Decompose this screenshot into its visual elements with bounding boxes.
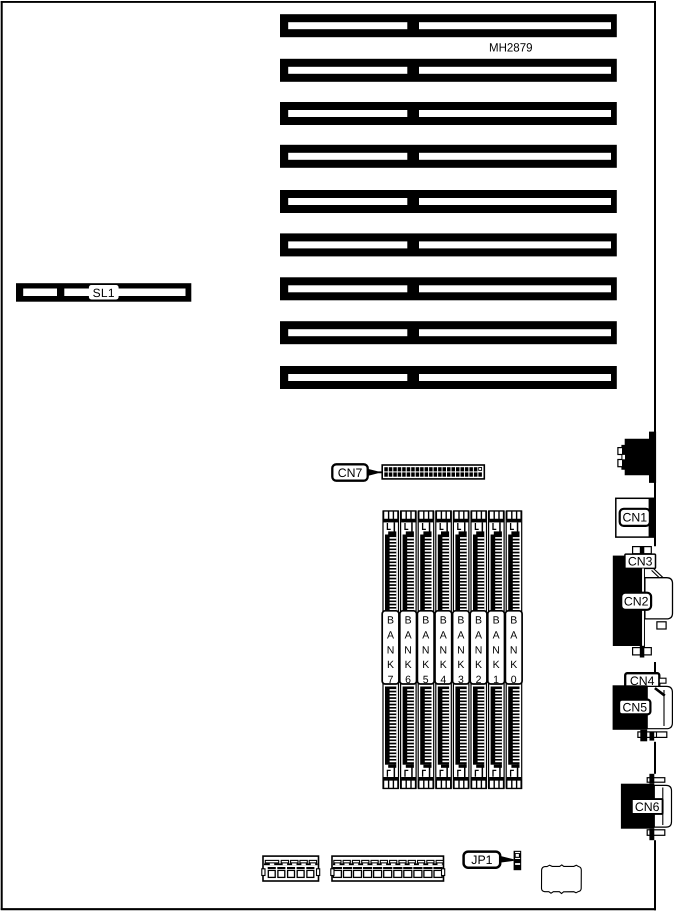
svg-text:N: N — [510, 644, 518, 656]
svg-text:K: K — [387, 659, 394, 671]
svg-text:CN5: CN5 — [622, 700, 647, 714]
svg-text:CN1: CN1 — [622, 511, 647, 525]
svg-text:N: N — [457, 644, 465, 656]
svg-text:K: K — [493, 659, 500, 671]
svg-text:A: A — [457, 630, 464, 642]
svg-text:N: N — [492, 644, 500, 656]
svg-text:6: 6 — [405, 674, 411, 686]
svg-text:4: 4 — [440, 674, 446, 686]
svg-text:1: 1 — [493, 674, 499, 686]
svg-text:K: K — [510, 659, 517, 671]
svg-text:B: B — [405, 615, 412, 627]
svg-text:0: 0 — [511, 674, 517, 686]
svg-text:B: B — [493, 615, 500, 627]
svg-text:B: B — [475, 615, 482, 627]
svg-text:CN2: CN2 — [624, 595, 649, 609]
svg-text:K: K — [475, 659, 482, 671]
svg-text:3: 3 — [458, 674, 464, 686]
svg-text:2: 2 — [476, 674, 482, 686]
svg-text:A: A — [387, 630, 394, 642]
svg-text:N: N — [440, 644, 448, 656]
svg-text:N: N — [404, 644, 412, 656]
svg-text:N: N — [422, 644, 430, 656]
svg-text:B: B — [422, 615, 429, 627]
svg-text:A: A — [475, 630, 482, 642]
svg-text:K: K — [457, 659, 464, 671]
svg-text:B: B — [457, 615, 464, 627]
svg-text:SL1: SL1 — [93, 286, 115, 300]
svg-text:B: B — [387, 615, 394, 627]
svg-text:K: K — [405, 659, 412, 671]
svg-text:A: A — [493, 630, 500, 642]
svg-text:MH2879: MH2879 — [489, 41, 533, 55]
svg-text:N: N — [387, 644, 395, 656]
svg-text:5: 5 — [423, 674, 429, 686]
svg-text:K: K — [440, 659, 447, 671]
svg-text:A: A — [510, 630, 517, 642]
svg-text:A: A — [440, 630, 447, 642]
svg-text:CN7: CN7 — [338, 466, 363, 480]
svg-text:B: B — [440, 615, 447, 627]
svg-text:B: B — [510, 615, 517, 627]
svg-text:N: N — [475, 644, 483, 656]
svg-text:A: A — [422, 630, 429, 642]
svg-text:CN6: CN6 — [635, 800, 660, 814]
svg-text:K: K — [422, 659, 429, 671]
svg-text:CN3: CN3 — [628, 555, 653, 569]
svg-text:A: A — [405, 630, 412, 642]
svg-text:JP1: JP1 — [471, 853, 492, 867]
svg-text:7: 7 — [388, 674, 394, 686]
